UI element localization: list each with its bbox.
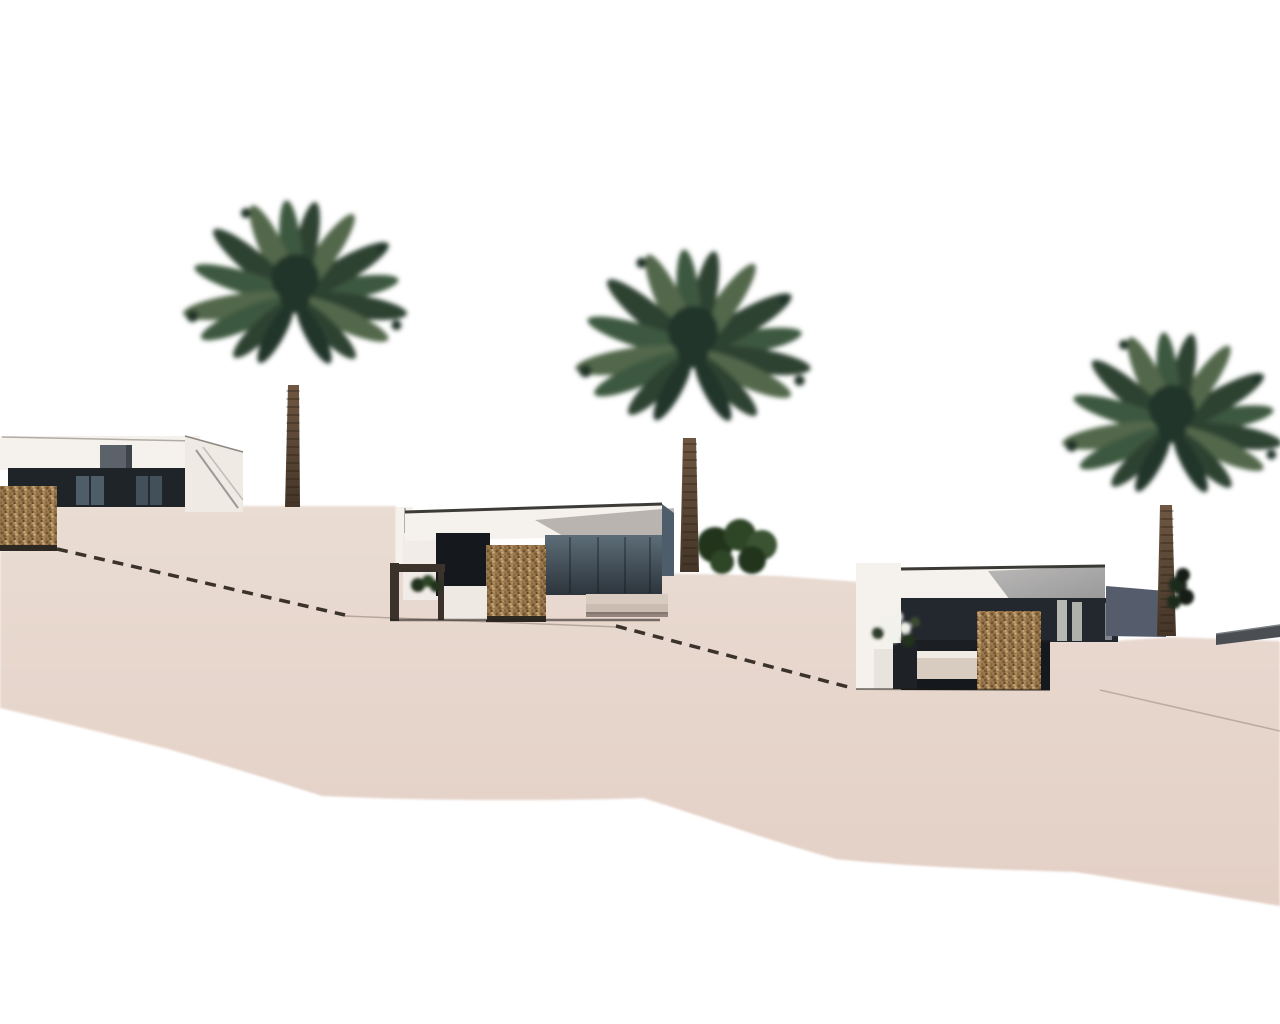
villa-middle-parapet [444,586,487,620]
villa-left-gabion-pillar [0,486,57,547]
villa-middle-glazing-right [545,535,662,595]
villa-middle-bench [586,594,668,617]
villa-middle-side-face [662,504,674,576]
villa-left-gabion-base-shadow [0,545,57,551]
villa-right-base-shadow [856,689,1050,690]
villa-right-door-slit-2 [1072,602,1082,641]
render-image [0,0,1280,1024]
villa-right-planter [874,643,917,689]
palm-middle-trunk [680,438,699,572]
villa-middle-gabion-pillar [486,545,546,620]
architectural-render [0,0,1280,1024]
villa-left-roof-box-shade [126,445,132,469]
villa-right-bench [914,651,982,679]
villa-right-gabion-pillar [977,611,1041,690]
villa-right-door-slit-1 [1057,600,1067,641]
villa-right-wing-blue [1106,586,1166,637]
